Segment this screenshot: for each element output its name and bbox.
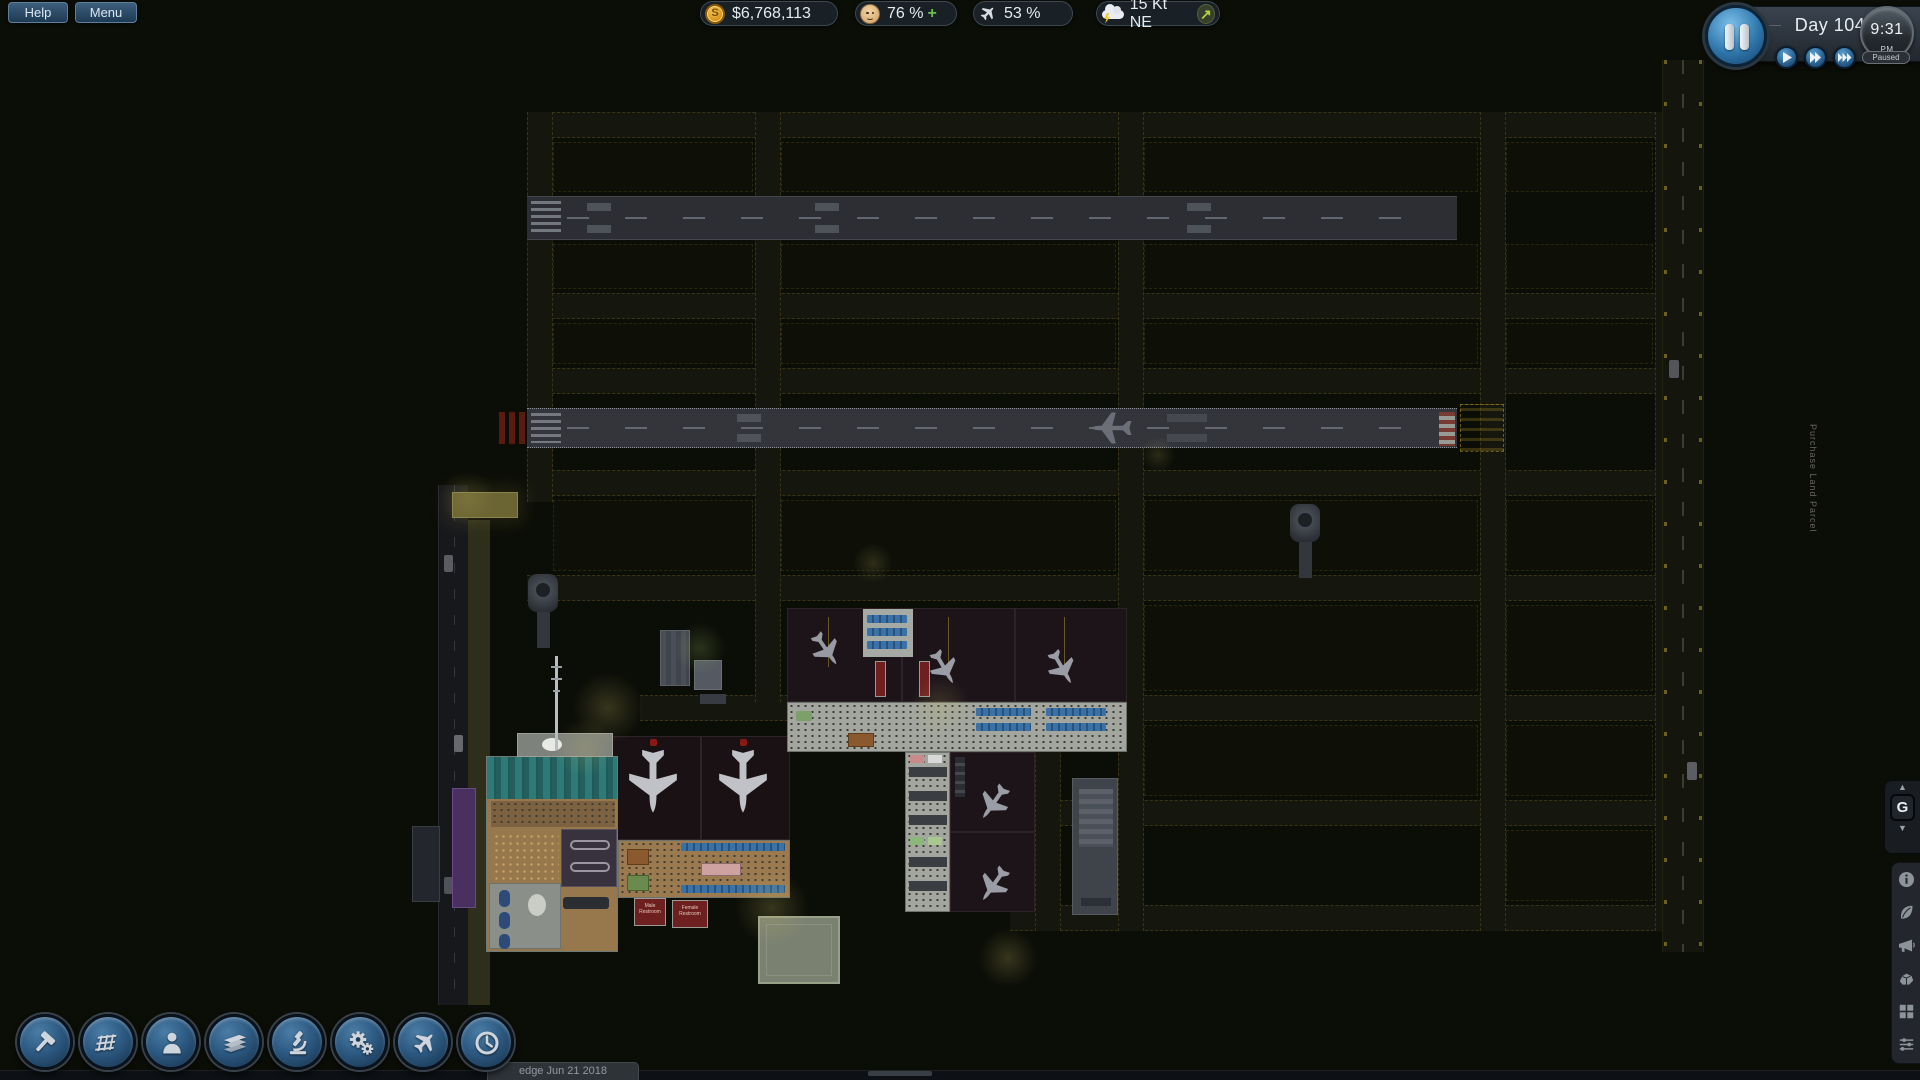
passenger-face-icon xyxy=(860,4,880,24)
field-cell xyxy=(1144,605,1478,691)
field-cell xyxy=(1506,244,1653,289)
gate-apron[interactable] xyxy=(612,736,790,840)
vending-machine[interactable] xyxy=(499,912,510,929)
floor-selector: ▲ G ▼ xyxy=(1884,780,1920,854)
pause-icon xyxy=(1725,24,1734,50)
sliders-icon xyxy=(1897,1035,1916,1054)
parked-airplane[interactable] xyxy=(979,861,1011,910)
tower-cab xyxy=(528,574,558,612)
runway-touchdown-mark xyxy=(1187,203,1211,211)
field-cell xyxy=(1144,142,1478,192)
field-cell xyxy=(1506,500,1653,571)
seat-row[interactable] xyxy=(976,723,1031,731)
staff-button[interactable] xyxy=(143,1014,199,1070)
baggage-row[interactable] xyxy=(909,857,947,867)
terminal-access-road[interactable] xyxy=(438,485,468,1005)
shop-kiosk[interactable] xyxy=(627,849,649,865)
info-tool-button[interactable] xyxy=(1892,863,1920,896)
baggage-cart[interactable] xyxy=(910,755,924,763)
runway-1[interactable] xyxy=(527,196,1457,240)
baggage-cart[interactable] xyxy=(928,755,942,763)
concourse-corridor[interactable] xyxy=(787,702,1127,752)
flight-rating-indicator[interactable]: 53 % xyxy=(973,1,1073,26)
runway-touchdown-mark xyxy=(737,434,761,442)
mast-pole xyxy=(555,656,558,750)
time-control-panel: Day 104 9:31 PM Paused xyxy=(1728,6,1920,62)
floor-up-button[interactable]: ▲ xyxy=(1885,781,1920,793)
tower-base xyxy=(1299,538,1312,578)
baggage-row[interactable] xyxy=(909,815,947,825)
baggage-belt-window xyxy=(563,897,609,909)
gate-seating-alcove[interactable] xyxy=(863,609,913,657)
info-desk[interactable] xyxy=(528,894,546,916)
day-divider xyxy=(1769,25,1781,26)
fast-forward-button[interactable] xyxy=(1804,46,1827,69)
purchase-land-label[interactable]: Purchase Land Parcel xyxy=(1808,424,1818,533)
floor-tiles-icon xyxy=(95,1029,123,1057)
fuel-tanks[interactable] xyxy=(700,694,726,704)
gate-divider xyxy=(700,737,702,839)
airplane-on-runway[interactable] xyxy=(1080,404,1146,457)
restroom-sign-vertical xyxy=(875,661,886,697)
planter xyxy=(796,711,812,721)
grid-squares-icon xyxy=(1897,1002,1916,1021)
baggage-row[interactable] xyxy=(909,767,947,777)
aircraft-button[interactable] xyxy=(395,1014,451,1070)
stand-divider xyxy=(1014,609,1016,701)
parked-airplane[interactable] xyxy=(928,645,958,692)
male-restroom-sign[interactable]: Male Restroom xyxy=(634,898,666,926)
field-cell xyxy=(1506,725,1653,796)
fuel-depot[interactable] xyxy=(660,630,690,686)
seat-row[interactable] xyxy=(1046,708,1106,716)
aircraft-stands[interactable] xyxy=(787,608,1127,702)
airplane-icon xyxy=(974,0,1001,27)
baggage-cart[interactable] xyxy=(910,837,924,845)
parked-airplane[interactable] xyxy=(627,741,679,820)
seat-row[interactable] xyxy=(867,615,907,623)
baggage-row[interactable] xyxy=(909,791,947,801)
runway-touchdown-mark xyxy=(587,225,611,233)
coin-icon: S xyxy=(705,4,725,24)
baggage-carousel[interactable] xyxy=(570,862,610,872)
runway-end-markings xyxy=(1439,412,1455,446)
field-cell xyxy=(1506,323,1653,364)
play-button[interactable] xyxy=(1775,46,1798,69)
parked-airplane[interactable] xyxy=(979,779,1011,828)
microscope-icon xyxy=(284,1029,312,1057)
current-floor-button[interactable]: G xyxy=(1890,794,1915,821)
road-lamps xyxy=(1699,60,1702,952)
runway-touchdown-mark xyxy=(1187,225,1211,233)
food-court[interactable] xyxy=(618,840,790,898)
runway-touchdown-mark xyxy=(737,414,761,422)
service-road[interactable] xyxy=(1662,60,1704,952)
plane-tail-fin xyxy=(740,739,747,746)
field-cell xyxy=(553,323,753,364)
control-tower[interactable] xyxy=(528,574,558,648)
simairport-game-screen: Male Restroom Female Restroom xyxy=(0,0,1920,1080)
schedule-button[interactable] xyxy=(458,1014,514,1070)
garage-building[interactable] xyxy=(412,826,440,902)
planks-icon xyxy=(221,1029,249,1057)
vehicle[interactable] xyxy=(454,735,463,752)
marketing-tool-button[interactable] xyxy=(1892,929,1920,962)
vehicle[interactable] xyxy=(1669,360,1679,378)
tower-base xyxy=(537,608,550,648)
plane-tail-fin xyxy=(650,739,657,746)
checkin-queue xyxy=(491,801,615,827)
field-cell xyxy=(1506,142,1653,192)
control-tower[interactable] xyxy=(1290,504,1320,578)
passenger-satisfaction-indicator[interactable]: 76 % + xyxy=(855,1,957,26)
research-button[interactable] xyxy=(269,1014,325,1070)
parked-airplane[interactable] xyxy=(810,627,840,674)
parked-airplane[interactable] xyxy=(717,741,769,820)
filters-tool-button[interactable] xyxy=(1892,1028,1920,1061)
food-counter[interactable] xyxy=(701,863,741,876)
checkin-desks[interactable] xyxy=(487,757,617,799)
field-cell xyxy=(553,500,753,571)
parked-airplane[interactable] xyxy=(1046,645,1076,692)
runway-touchdown-mark xyxy=(1167,414,1207,422)
field-cell xyxy=(1506,605,1653,691)
mast-crossbar xyxy=(551,666,562,668)
baggage-cart[interactable] xyxy=(928,837,942,845)
build-version-tab: edge Jun 21 2018 xyxy=(487,1062,639,1080)
field-cell xyxy=(781,142,1116,192)
systems-button[interactable] xyxy=(332,1014,388,1070)
waiting-chairs[interactable] xyxy=(493,833,559,889)
bus-stop-zone[interactable] xyxy=(452,788,476,908)
vending-machine[interactable] xyxy=(499,890,510,907)
materials-button[interactable] xyxy=(206,1014,262,1070)
fast-forward-icon xyxy=(1808,50,1823,65)
runway-touchdown-mark xyxy=(1167,434,1207,442)
mast-crossbar xyxy=(553,690,560,692)
money-indicator[interactable]: S $6,768,113 xyxy=(700,1,838,26)
menu-button[interactable]: Menu xyxy=(75,2,137,23)
chevron-down-icon: ▼ xyxy=(1898,823,1907,833)
field-cell xyxy=(781,323,1116,364)
cargo-building[interactable] xyxy=(1072,778,1118,915)
passenger-satisfaction-value: 76 % xyxy=(887,5,923,23)
aircraft-stands[interactable] xyxy=(950,752,1035,912)
runway-centerline xyxy=(567,217,1427,219)
field-cell xyxy=(553,142,753,192)
environment-tool-button[interactable] xyxy=(1892,896,1920,929)
floors-button[interactable] xyxy=(80,1014,136,1070)
baggage-concourse[interactable] xyxy=(905,752,950,912)
seat-row[interactable] xyxy=(681,885,785,893)
weather-indicator[interactable]: 15 Kt NE ↗ xyxy=(1096,1,1220,26)
field-cell xyxy=(1144,244,1478,289)
concrete-pad[interactable] xyxy=(758,916,840,984)
clock-icon xyxy=(473,1029,501,1057)
checkin-hall[interactable] xyxy=(486,756,618,952)
clock-time: 9:31 xyxy=(1870,21,1903,38)
runway-hold-area xyxy=(1460,404,1504,452)
rock-icon xyxy=(1897,969,1916,988)
storm-cloud-icon xyxy=(1101,6,1123,22)
pause-button[interactable] xyxy=(1705,5,1767,67)
play-icon xyxy=(1779,50,1794,65)
field-cell xyxy=(553,244,753,289)
baggage-carousel[interactable] xyxy=(570,840,610,850)
info-icon xyxy=(1897,870,1916,889)
mast-crossbar xyxy=(551,678,562,680)
loading-dock xyxy=(1081,898,1111,906)
shop-kiosk[interactable] xyxy=(627,875,649,891)
runway-threshold-markings xyxy=(531,413,561,443)
speed-status-badge: Paused xyxy=(1862,51,1910,64)
services-room[interactable] xyxy=(489,883,561,949)
overlays-tool-button[interactable] xyxy=(1892,995,1920,1028)
seat-row[interactable] xyxy=(867,641,907,649)
field-cell xyxy=(1506,830,1653,901)
vehicle[interactable] xyxy=(1687,762,1697,780)
stand-divider xyxy=(951,831,1034,833)
floor-down-button[interactable]: ▼ xyxy=(1885,822,1920,834)
panel-drag-handle[interactable] xyxy=(868,1071,932,1076)
light-glow xyxy=(978,928,1038,988)
runway-touchdown-mark xyxy=(815,225,839,233)
female-restroom-sign[interactable]: Female Restroom xyxy=(672,900,708,928)
fastest-forward-button[interactable] xyxy=(1833,46,1856,69)
seat-row[interactable] xyxy=(681,843,785,851)
chevron-up-icon: ▲ xyxy=(1898,782,1907,792)
pause-icon xyxy=(1740,24,1749,50)
airport-entrance-sign[interactable] xyxy=(452,492,518,518)
pad-marking xyxy=(766,924,832,976)
runway-2[interactable] xyxy=(527,408,1457,448)
seat-row[interactable] xyxy=(1046,723,1106,731)
flight-rating-value: 53 % xyxy=(1004,5,1040,23)
megaphone-icon xyxy=(1897,936,1916,955)
wind-value: 15 Kt NE xyxy=(1130,0,1188,32)
game-viewport[interactable]: Male Restroom Female Restroom xyxy=(0,0,1920,1080)
seat-row[interactable] xyxy=(976,708,1031,716)
wind-ne-arrow-icon: ↗ xyxy=(1197,4,1215,24)
person-icon xyxy=(158,1029,186,1057)
entrance-canopy[interactable] xyxy=(517,733,613,757)
help-button[interactable]: Help xyxy=(8,2,68,23)
building-roof xyxy=(1079,789,1113,847)
runway-centerline xyxy=(567,427,1427,429)
construction-button[interactable] xyxy=(17,1014,73,1070)
restroom-sign-vertical xyxy=(919,661,930,697)
field-cell xyxy=(1144,323,1478,364)
road-centerline xyxy=(1682,60,1684,952)
money-value: $6,768,113 xyxy=(732,5,811,23)
antenna-mast[interactable] xyxy=(550,656,562,750)
tower-cab xyxy=(1290,504,1320,542)
runway-touchdown-mark xyxy=(587,203,611,211)
field-cell xyxy=(1144,725,1478,796)
taxiway[interactable] xyxy=(527,293,1704,319)
vehicle[interactable] xyxy=(444,555,453,572)
road-lamps xyxy=(1664,60,1667,952)
hammer-icon xyxy=(32,1029,60,1057)
airplane-icon xyxy=(404,1023,444,1063)
field-cell xyxy=(781,500,1116,571)
baggage-row[interactable] xyxy=(909,881,947,891)
overlay-tool-stack xyxy=(1891,862,1920,1064)
seat-row[interactable] xyxy=(867,628,907,636)
runway-touchdown-mark xyxy=(815,203,839,211)
fastest-forward-icon xyxy=(1837,50,1852,65)
leaf-icon xyxy=(1897,903,1916,922)
service-building[interactable] xyxy=(694,660,722,690)
terrain-tool-button[interactable] xyxy=(1892,962,1920,995)
baggage-belt xyxy=(955,757,965,797)
runway-approach-bars xyxy=(499,412,525,444)
gears-icon xyxy=(347,1029,375,1057)
satisfaction-trend: + xyxy=(927,5,936,23)
food-kiosk[interactable] xyxy=(848,733,874,747)
vending-machine[interactable] xyxy=(499,934,510,949)
field-cell xyxy=(781,244,1116,289)
baggage-claim[interactable] xyxy=(561,829,617,887)
taxiway[interactable] xyxy=(1480,112,1506,931)
runway-threshold-markings xyxy=(531,201,561,235)
bottom-bar xyxy=(0,1070,1920,1080)
